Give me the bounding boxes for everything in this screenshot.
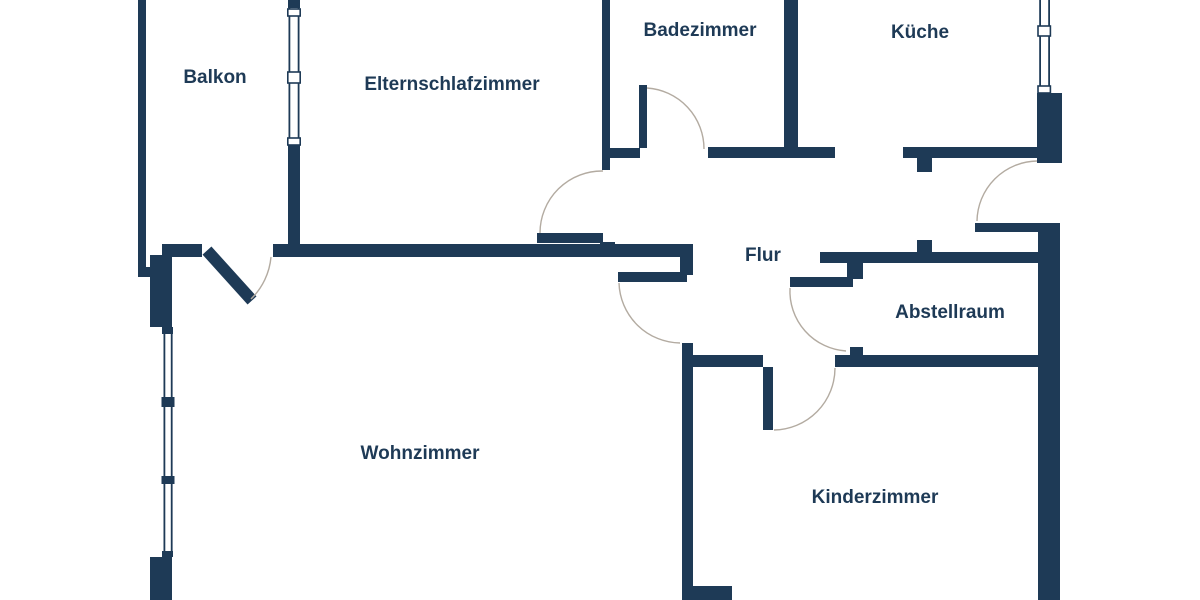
wall-abstell-west-step (847, 263, 863, 279)
room-label-wohnzimmer: Wohnzimmer (361, 443, 481, 464)
wall-wohnzimmer-north-end (680, 244, 693, 275)
wall-balkon-east-top-stub (288, 0, 300, 8)
bad-door-leaf (639, 85, 647, 148)
floor-plan: Balkon Elternschlafzimmer Badezimmer Küc… (0, 0, 1200, 600)
room-label-kueche: Küche (891, 22, 949, 43)
wall-eltern-bad-divider (602, 0, 610, 170)
floor-plan-svg: Balkon Elternschlafzimmer Badezimmer Küc… (0, 0, 1200, 600)
abstell-door-leaf (790, 277, 853, 287)
window-sash (288, 9, 300, 16)
eltern-door-step (600, 242, 615, 253)
wall-balkon-east-lower (288, 145, 300, 245)
wall-balkon-southwest-stub (138, 267, 151, 277)
wall-west-pier-upper (150, 255, 172, 327)
entrance-door-arc (977, 161, 1037, 221)
wall-abstell-south-jamb (850, 347, 863, 355)
room-label-kinderzimmer: Kinderzimmer (812, 487, 939, 508)
kueche-window (1038, 0, 1050, 93)
wall-abstell-south (835, 355, 1038, 367)
bad-door-arc (647, 88, 704, 149)
wohnzimmer-door-leaf (618, 272, 687, 282)
window-sash (1038, 26, 1050, 36)
balkon-door-arc (251, 257, 271, 299)
abstell-door-arc (790, 288, 846, 351)
window-sash (288, 72, 300, 83)
room-label-badezimmer: Badezimmer (644, 20, 758, 41)
wall-kueche-south (903, 147, 1038, 158)
wall-balkon-west (138, 0, 146, 277)
room-label-flur: Flur (745, 245, 781, 266)
room-label-elternschlafzimmer: Elternschlafzimmer (364, 74, 540, 95)
room-label-balkon: Balkon (183, 67, 246, 88)
wall-west-pier-lower (150, 557, 172, 600)
window-line (164, 327, 166, 557)
window-sash (162, 397, 175, 407)
window-cap (162, 551, 173, 557)
window-line (171, 327, 173, 557)
wall-wohn-kinder-divider (682, 343, 693, 600)
wall-entrance-lip (975, 223, 1043, 232)
wohnzimmer-door-arc (619, 283, 680, 343)
wall-east-main (1038, 223, 1060, 600)
window-sash (162, 476, 175, 484)
window-sash (288, 138, 300, 145)
balkon-door-leaf (211, 255, 248, 296)
wohnzimmer-window (162, 327, 175, 557)
wall-abstell-north-jamb (917, 240, 932, 252)
eltern-door-leaf (537, 233, 603, 243)
wall-bad-kueche-divider (784, 0, 798, 155)
balkon-window (288, 8, 300, 145)
wall-wohnzimmer-north-main (273, 244, 690, 257)
window-line (1039, 0, 1041, 90)
wall-kueche-south-jamb (917, 158, 932, 172)
window-sash (1038, 86, 1050, 93)
eltern-door-arc (540, 171, 603, 233)
wall-abstell-north (820, 252, 1038, 263)
wall-east-pier (1037, 93, 1062, 163)
walls (138, 0, 1062, 600)
kinder-door-arc (774, 368, 835, 430)
wall-kinder-north (682, 355, 763, 367)
window-line (1048, 0, 1050, 90)
wall-bad-south-left-stub (610, 148, 640, 158)
room-labels: Balkon Elternschlafzimmer Badezimmer Küc… (183, 20, 1005, 508)
wall-bad-south (708, 147, 835, 158)
room-label-abstellraum: Abstellraum (895, 302, 1005, 323)
kinder-door-leaf (763, 367, 773, 430)
wall-kinder-south-stub (693, 586, 732, 600)
